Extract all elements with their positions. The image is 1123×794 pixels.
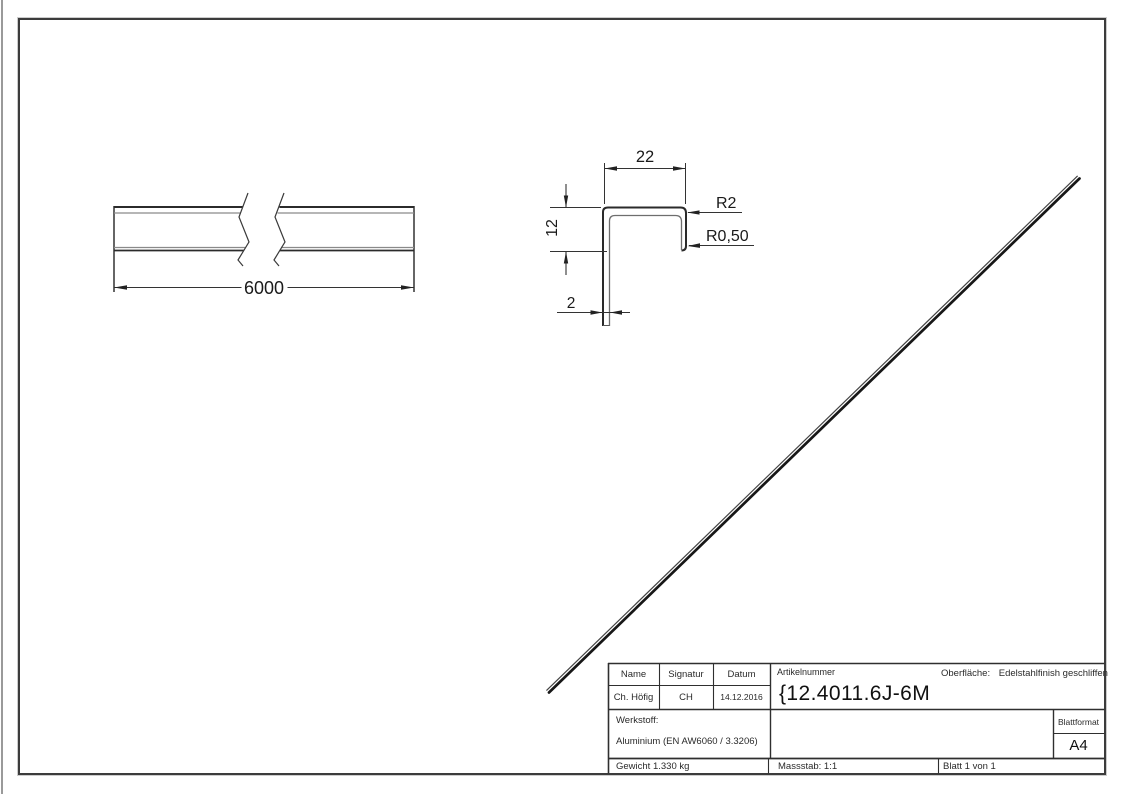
titleblock-header-datum: Datum — [713, 663, 770, 685]
titleblock-value-signatur: CH — [659, 685, 713, 709]
dim-text-height: 12 — [544, 219, 561, 237]
oberflaeche-row: Oberfläche: Edelstahlfinish geschliffen — [941, 668, 1108, 679]
dim-text-width: 22 — [636, 148, 654, 166]
dim-arrow — [605, 166, 618, 170]
section-outer-contour — [603, 208, 686, 327]
dim-text-radius-inner: R0,50 — [706, 228, 749, 245]
oberflaeche-value: Edelstahlfinish geschliffen — [999, 668, 1108, 679]
dim-arrow — [687, 210, 700, 214]
blattformat-value: A4 — [1053, 733, 1104, 758]
titleblock-value-datum: 14.12.2016 — [713, 685, 770, 709]
oberflaeche-label: Oberfläche: — [941, 668, 990, 679]
blatt-text: Blatt 1 von 1 — [943, 761, 996, 772]
dim-arrow — [401, 285, 414, 289]
dim-arrow — [591, 310, 603, 314]
gewicht-text: Gewicht 1.330 kg — [616, 761, 689, 772]
massstab-text: Massstab: 1:1 — [778, 761, 837, 772]
isometric-view — [547, 176, 1080, 692]
titleblock-header-name: Name — [608, 663, 659, 685]
werkstoff-label: Werkstoff: — [616, 715, 658, 726]
section-view: 22 12 2 R2 R0,50 — [544, 148, 754, 326]
break-line-left — [238, 193, 249, 266]
dim-arrow — [673, 166, 686, 170]
dim-text-thickness: 2 — [567, 295, 576, 312]
artikelnummer-value: {12.4011.6J-6M — [779, 682, 930, 706]
break-line-right — [274, 193, 285, 266]
iso-profile-edge — [547, 176, 1078, 690]
section-inner-contour — [610, 216, 682, 327]
dim-arrow — [688, 243, 701, 248]
drawing-sheet: 6000 22 12 — [0, 0, 1123, 794]
dim-arrow — [564, 196, 568, 208]
blattformat-label: Blattformat — [1053, 710, 1104, 733]
dim-arrow — [610, 310, 622, 314]
dim-arrow — [564, 252, 568, 264]
dim-text-radius-outer: R2 — [716, 195, 737, 212]
werkstoff-value: Aluminium (EN AW6060 / 3.3206) — [616, 736, 758, 747]
titleblock-value-name: Ch. Höfig — [608, 685, 659, 709]
artikelnummer-label: Artikelnummer — [777, 667, 835, 677]
iso-profile-body — [549, 179, 1080, 693]
front-view: 6000 — [114, 193, 414, 298]
dim-text-length: 6000 — [244, 278, 284, 298]
titleblock-header-signatur: Signatur — [659, 663, 713, 685]
dim-arrow — [114, 285, 127, 289]
